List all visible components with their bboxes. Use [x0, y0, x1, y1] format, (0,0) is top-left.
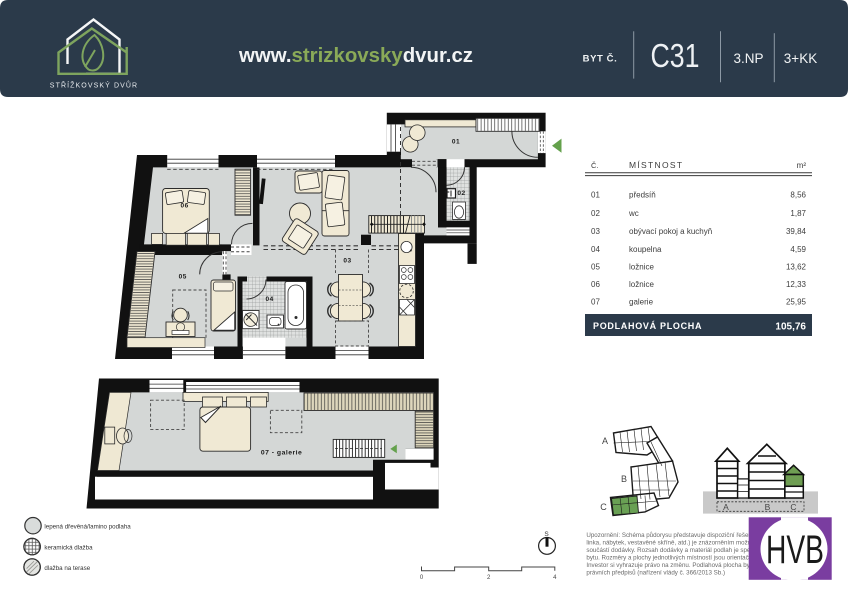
svg-text:m²: m²	[797, 161, 807, 170]
svg-text:A: A	[602, 436, 608, 446]
svg-text:keramická dlažba: keramická dlažba	[44, 544, 93, 551]
svg-text:ložnice: ložnice	[629, 280, 654, 289]
svg-text:B: B	[621, 474, 627, 484]
svg-text:předsíň: předsíň	[629, 191, 656, 200]
svg-text:02: 02	[457, 190, 465, 197]
svg-text:C: C	[790, 502, 796, 512]
svg-text:2: 2	[487, 575, 491, 581]
svg-text:13,62: 13,62	[786, 263, 807, 272]
svg-text:01: 01	[452, 139, 460, 146]
svg-text:obývací pokoj a kuchyň: obývací pokoj a kuchyň	[629, 227, 712, 236]
svg-text:05: 05	[591, 263, 600, 272]
svg-text:25,95: 25,95	[786, 298, 807, 307]
svg-text:PODLAHOVÁ PLOCHA: PODLAHOVÁ PLOCHA	[593, 321, 702, 331]
svg-text:04: 04	[591, 245, 600, 254]
svg-text:39,84: 39,84	[786, 227, 807, 236]
svg-text:04: 04	[265, 296, 273, 303]
svg-text:koupelna: koupelna	[629, 245, 662, 254]
svg-text:BYT Č.: BYT Č.	[583, 53, 618, 65]
svg-text:12,33: 12,33	[786, 280, 807, 289]
svg-text:1,87: 1,87	[790, 209, 806, 218]
svg-text:ložnice: ložnice	[629, 263, 654, 272]
svg-text:HVB: HVB	[766, 528, 824, 572]
svg-text:S: S	[544, 531, 549, 538]
svg-text:01: 01	[591, 191, 600, 200]
svg-text:bytu. Rozměry a plochy jednotl: bytu. Rozměry a plochy jednotlivých míst…	[586, 555, 755, 562]
svg-text:105,76: 105,76	[775, 322, 806, 333]
svg-text:B: B	[765, 502, 771, 512]
svg-text:03: 03	[343, 258, 351, 265]
svg-text:wc: wc	[628, 209, 639, 218]
svg-text:lepená dřevěná/lamino podlaha: lepená dřevěná/lamino podlaha	[44, 524, 131, 531]
svg-text:C31: C31	[651, 37, 700, 74]
svg-text:07: 07	[591, 298, 600, 307]
svg-text:4: 4	[553, 575, 557, 581]
svg-text:02: 02	[591, 209, 600, 218]
svg-text:www.strizkovskydvur.cz: www.strizkovskydvur.cz	[238, 44, 473, 67]
svg-text:05: 05	[179, 274, 187, 281]
svg-text:A: A	[723, 502, 729, 512]
svg-text:8,56: 8,56	[790, 191, 806, 200]
svg-text:03: 03	[591, 227, 600, 236]
svg-text:dlažba na terase: dlažba na terase	[44, 565, 90, 572]
svg-text:3.NP: 3.NP	[733, 51, 763, 66]
svg-text:MÍSTNOST: MÍSTNOST	[629, 160, 683, 170]
svg-text:C: C	[600, 502, 607, 512]
svg-text:06: 06	[180, 203, 188, 210]
svg-text:galerie: galerie	[629, 298, 654, 307]
svg-text:07 - galerie: 07 - galerie	[261, 450, 303, 457]
svg-text:06: 06	[591, 280, 600, 289]
svg-text:právních předpisů (nařízení vl: právních předpisů (nařízení vlády č. 366…	[586, 570, 725, 577]
svg-text:4,59: 4,59	[790, 245, 806, 254]
svg-text:3+KK: 3+KK	[784, 51, 817, 66]
svg-text:STŘÍŽKOVSKÝ DVŮR: STŘÍŽKOVSKÝ DVŮR	[50, 81, 138, 90]
svg-text:0: 0	[420, 575, 424, 581]
svg-text:Č.: Č.	[591, 161, 599, 170]
